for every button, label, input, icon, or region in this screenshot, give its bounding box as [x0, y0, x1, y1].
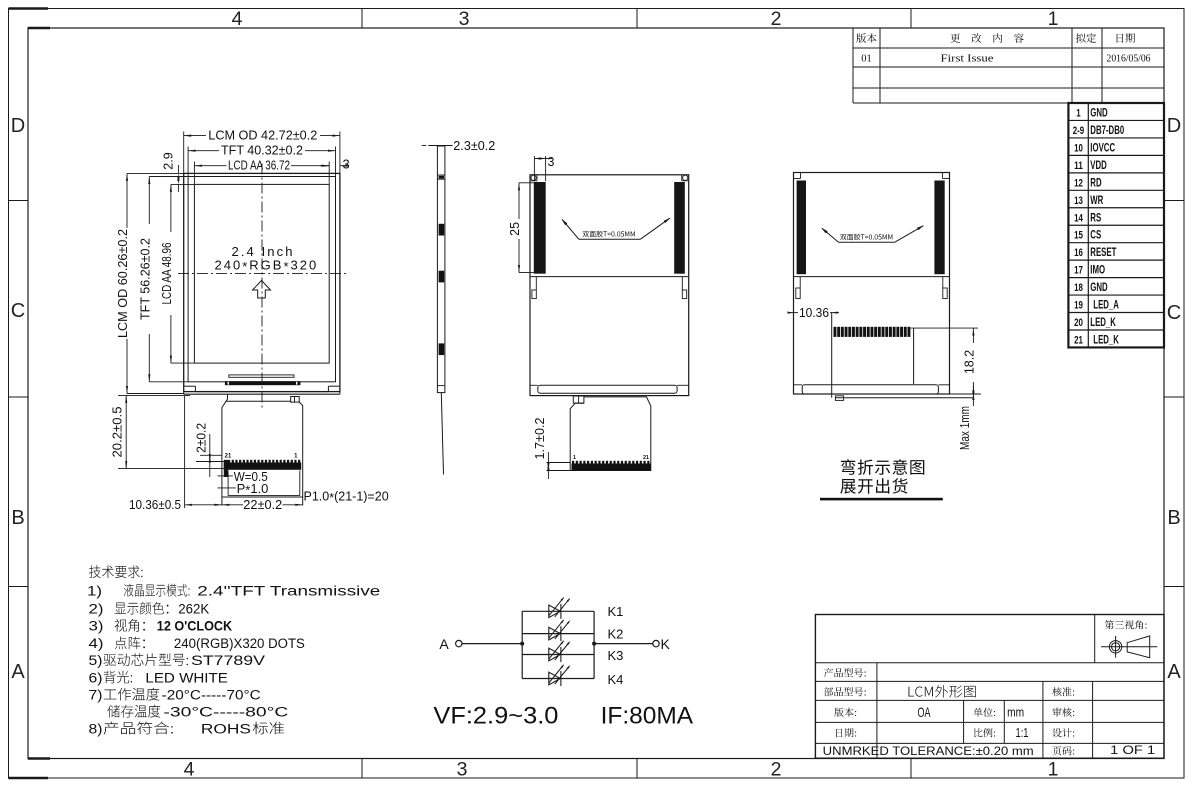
- svg-text:ROHS: ROHS: [201, 721, 251, 736]
- svg-text:P1.0*(21-1)=20: P1.0*(21-1)=20: [304, 490, 389, 506]
- svg-text:GND: GND: [1090, 282, 1107, 294]
- svg-text:D: D: [11, 115, 25, 137]
- svg-text:LCD AA 36.72: LCD AA 36.72: [228, 158, 290, 173]
- svg-text:2): 2): [89, 602, 104, 617]
- svg-text:21: 21: [643, 455, 649, 461]
- svg-text:C: C: [1167, 302, 1181, 324]
- svg-text:ST7789V: ST7789V: [191, 653, 265, 668]
- svg-text:VF:2.9~3.0: VF:2.9~3.0: [433, 703, 558, 730]
- svg-text:21: 21: [225, 454, 232, 460]
- svg-text:25: 25: [508, 222, 522, 236]
- svg-text:19: 19: [1074, 300, 1083, 312]
- svg-text:3: 3: [459, 8, 470, 30]
- svg-text:WR: WR: [1090, 195, 1103, 207]
- svg-text:RD: RD: [1090, 177, 1101, 189]
- svg-text:LCM OD 42.72±0.2: LCM OD 42.72±0.2: [208, 128, 317, 143]
- svg-text:240(RGB)X320 DOTS: 240(RGB)X320 DOTS: [174, 636, 305, 651]
- svg-text:1): 1): [87, 584, 102, 599]
- svg-text:7): 7): [89, 688, 103, 703]
- svg-text:GND: GND: [1090, 108, 1107, 120]
- svg-text:A: A: [1167, 661, 1181, 683]
- svg-text:3: 3: [343, 157, 350, 172]
- svg-text:1:1: 1:1: [1016, 725, 1029, 740]
- svg-text:3: 3: [548, 155, 555, 169]
- svg-text:Max 1mm: Max 1mm: [958, 406, 972, 450]
- svg-text:LED_K: LED_K: [1093, 334, 1119, 346]
- svg-text:18: 18: [1074, 282, 1083, 294]
- svg-text:VDD: VDD: [1090, 160, 1107, 172]
- svg-text:First Issue: First Issue: [941, 54, 994, 65]
- svg-text:240*RGB*320: 240*RGB*320: [215, 258, 319, 275]
- svg-text:15: 15: [1074, 230, 1083, 242]
- svg-text:1 OF 1: 1 OF 1: [1110, 745, 1155, 757]
- svg-text:1: 1: [1076, 108, 1080, 120]
- svg-text:3: 3: [457, 759, 468, 781]
- svg-text:1.7±0.2: 1.7±0.2: [533, 417, 547, 459]
- svg-text:K: K: [661, 636, 671, 652]
- svg-text:262K: 262K: [178, 602, 209, 617]
- svg-text:21: 21: [1074, 334, 1083, 346]
- svg-text:B: B: [11, 507, 24, 529]
- svg-text:TFT 56.26±0.2: TFT 56.26±0.2: [137, 238, 152, 320]
- svg-text:K2: K2: [608, 627, 624, 642]
- svg-text:11: 11: [1074, 160, 1083, 172]
- svg-text:RS: RS: [1090, 212, 1101, 224]
- svg-text:22±0.2: 22±0.2: [243, 498, 282, 512]
- svg-text:DB7-DB0: DB7-DB0: [1090, 125, 1124, 137]
- svg-text:20: 20: [1074, 317, 1083, 329]
- svg-text:D: D: [1167, 115, 1181, 137]
- svg-text:C: C: [11, 300, 25, 322]
- svg-text:K4: K4: [608, 672, 624, 687]
- svg-text:-20°C-----70°C: -20°C-----70°C: [162, 688, 261, 703]
- svg-text:3): 3): [89, 619, 104, 634]
- svg-text:2.3±0.2: 2.3±0.2: [453, 139, 495, 153]
- svg-text:TFT 40.32±0.2: TFT 40.32±0.2: [221, 143, 303, 158]
- svg-text:RESET: RESET: [1090, 247, 1116, 259]
- svg-text:B: B: [1167, 507, 1180, 529]
- svg-text:-30°C-----80°C: -30°C-----80°C: [163, 705, 288, 720]
- svg-text:LED_A: LED_A: [1093, 300, 1119, 312]
- svg-text:K1: K1: [608, 604, 624, 619]
- svg-text:A: A: [11, 661, 25, 683]
- svg-text:12 O'CLOCK: 12 O'CLOCK: [157, 619, 233, 634]
- svg-text:2: 2: [771, 8, 782, 30]
- svg-text:01: 01: [861, 54, 872, 65]
- svg-text:12: 12: [1074, 177, 1083, 189]
- svg-text:4: 4: [184, 759, 195, 781]
- svg-text:A: A: [439, 636, 449, 652]
- svg-text:6): 6): [89, 670, 103, 685]
- svg-text:IF:80MA: IF:80MA: [601, 703, 694, 730]
- svg-text:CS: CS: [1090, 230, 1101, 242]
- svg-text:P*1.0: P*1.0: [237, 481, 269, 498]
- svg-text:K3: K3: [608, 648, 624, 663]
- svg-text:16: 16: [1074, 247, 1083, 259]
- svg-text:2016/05/06: 2016/05/06: [1107, 54, 1151, 65]
- svg-text:IOVCC: IOVCC: [1090, 142, 1115, 154]
- svg-text:2-9: 2-9: [1073, 125, 1084, 137]
- svg-text:LCM OD 60.26±0.2: LCM OD 60.26±0.2: [115, 229, 130, 338]
- svg-text:1: 1: [573, 455, 576, 461]
- svg-text:17: 17: [1074, 265, 1083, 277]
- svg-text:UNMRKED TOLERANCE:±0.20 mm: UNMRKED TOLERANCE:±0.20 mm: [823, 744, 1034, 758]
- svg-text:2±0.2: 2±0.2: [194, 423, 208, 453]
- svg-text:LCD AA 48.96: LCD AA 48.96: [159, 243, 174, 305]
- svg-text:8): 8): [89, 721, 103, 736]
- svg-text:mm: mm: [1007, 705, 1024, 720]
- svg-text:2.4''TFT Transmissive: 2.4''TFT Transmissive: [197, 584, 380, 599]
- svg-text:10.36: 10.36: [799, 306, 829, 320]
- svg-text:LED WHITE: LED WHITE: [145, 670, 228, 685]
- svg-text:IMO: IMO: [1090, 265, 1105, 277]
- svg-text:1: 1: [1048, 8, 1059, 30]
- svg-text:10: 10: [1074, 142, 1083, 154]
- svg-text:1: 1: [1048, 759, 1059, 781]
- svg-text:18.2: 18.2: [962, 350, 976, 374]
- svg-text:10.36±0.5: 10.36±0.5: [129, 498, 181, 512]
- svg-text:20.2±0.5: 20.2±0.5: [111, 406, 125, 457]
- svg-text:2.9: 2.9: [162, 152, 176, 169]
- svg-text:5): 5): [89, 653, 103, 668]
- svg-text:13: 13: [1074, 195, 1083, 207]
- svg-text:2: 2: [771, 759, 782, 781]
- svg-text:4): 4): [89, 636, 104, 651]
- svg-text:LED_K: LED_K: [1090, 317, 1116, 329]
- svg-text:OA: OA: [918, 704, 931, 720]
- svg-text:14: 14: [1074, 212, 1083, 224]
- svg-text:4: 4: [232, 8, 243, 30]
